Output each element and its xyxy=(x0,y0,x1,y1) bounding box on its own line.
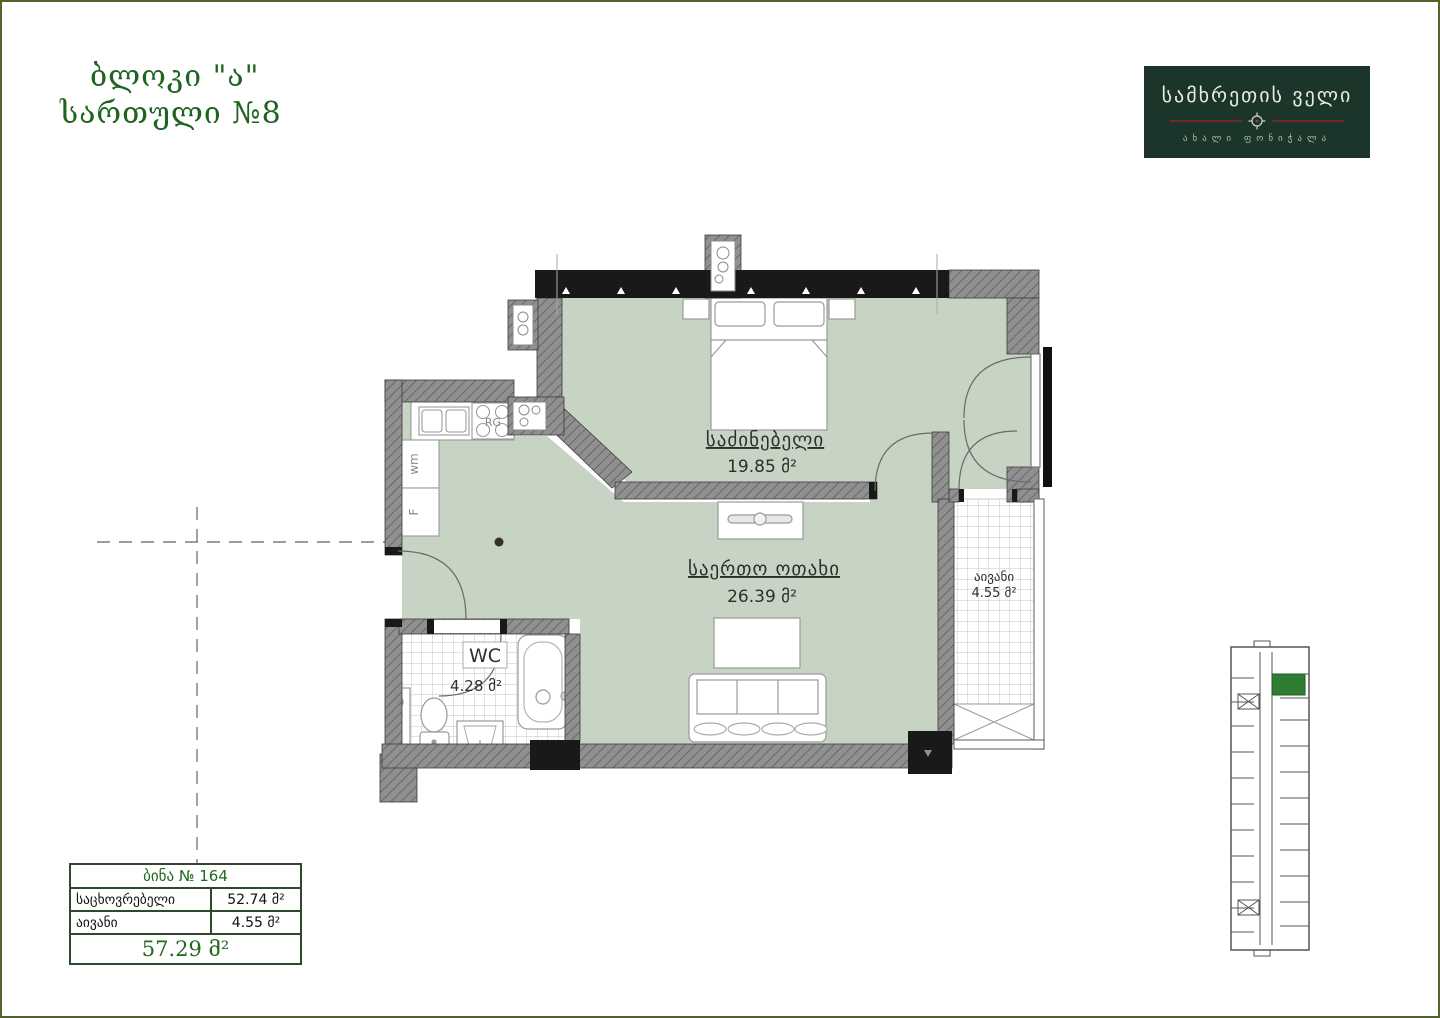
nightstand-right xyxy=(829,299,855,319)
apartment-summary-table: ბინა № 164 საცხოვრებელი 52.74 მ² აივანი … xyxy=(69,863,302,965)
row-label: საცხოვრებელი xyxy=(71,889,210,910)
wc-area: 4.28 მ² xyxy=(450,677,502,695)
window-recess xyxy=(1031,354,1040,467)
living-area: 26.39 მ² xyxy=(727,587,797,607)
french-window-bar xyxy=(1043,347,1052,487)
living-name: საერთო ოთახი xyxy=(688,558,840,580)
coffee-table xyxy=(714,618,800,668)
apartment-number: ბინა № 164 xyxy=(71,865,300,887)
stove-label: RG xyxy=(485,416,501,429)
bedroom-area: 19.85 მ² xyxy=(727,457,797,477)
balcony-name: აივანი xyxy=(974,570,1014,585)
row-label: აივანი xyxy=(71,912,210,933)
plan-sheet: ბლოკი "ა" სართული №8 სამხრეთის ველი ახალ… xyxy=(0,0,1440,1018)
entry-axis-dot xyxy=(495,538,504,547)
fridge-label: F xyxy=(407,508,421,515)
bathtub xyxy=(518,635,568,729)
wc-name: WC xyxy=(469,645,501,667)
balcony-floor xyxy=(954,499,1034,704)
balcony-x-section xyxy=(954,704,1034,740)
pillow-left xyxy=(715,302,765,326)
row-value: 52.74 მ² xyxy=(210,889,300,910)
row-value: 4.55 მ² xyxy=(210,912,300,933)
balcony-area: 4.55 მ² xyxy=(971,586,1016,601)
total-area: 57.29 მ² xyxy=(71,933,300,963)
bedroom-name: საძინებელი xyxy=(706,429,824,451)
table-row: საცხოვრებელი 52.74 მ² xyxy=(71,887,300,910)
toilet xyxy=(421,698,447,732)
highlighted-unit xyxy=(1272,674,1305,695)
nightstand-left xyxy=(683,299,709,319)
washer-label: wm xyxy=(407,453,421,475)
pillow-right xyxy=(774,302,824,326)
table-row: აივანი 4.55 მ² xyxy=(71,910,300,933)
key-plan xyxy=(1231,641,1309,956)
